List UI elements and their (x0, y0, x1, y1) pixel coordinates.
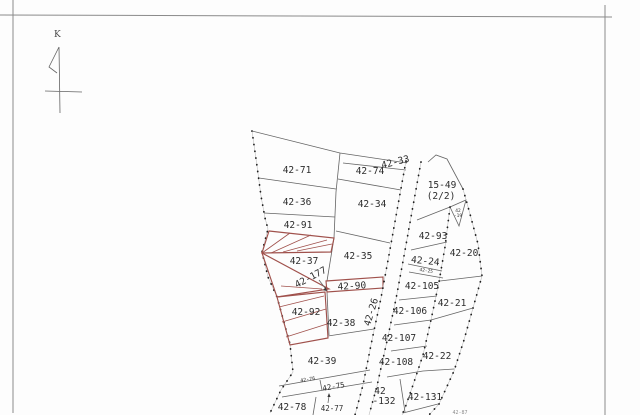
cadastral-map-page: K (0, 0, 640, 415)
divider-74-34 (338, 179, 401, 190)
divider-78-77 (313, 397, 316, 415)
parcel-label-42-37: 42-37 (290, 256, 319, 267)
parcel-label-42-22: 42-22 (423, 351, 452, 362)
parcel-label-42-76: 42-76 (300, 376, 316, 385)
north-arrow-shaft (45, 47, 82, 113)
arrow-42-77-head (327, 393, 330, 397)
divider-107-108 (391, 346, 427, 351)
divider-93-24 (411, 242, 447, 250)
parcel-label-42-177: 42-177 (293, 265, 328, 291)
parcel-label-42-19-line2: -19 (454, 213, 462, 219)
column-divider (334, 153, 340, 238)
page-border-top (0, 15, 612, 17)
parcel-label-42-21: 42-21 (438, 298, 467, 309)
parcel-label-42-107: 42-107 (382, 333, 416, 344)
parcel-label-42-91: 42-91 (284, 220, 313, 231)
parcel-label-42-78: 42-78 (278, 402, 307, 413)
divider-71-36 (259, 178, 336, 189)
divider-22-131 (423, 369, 454, 371)
divider-20-21 (440, 276, 482, 281)
parcel-label-42-24: 42-24 (410, 255, 440, 269)
parcel-15-49-bottom-edge (417, 207, 450, 220)
road-label-42-26: 42-26 (362, 297, 381, 328)
divider-132-131 (400, 379, 405, 412)
parcel-label-42-106: 42-106 (393, 306, 428, 317)
parcel-label-15-49-line1: 15-49 (428, 180, 457, 191)
parcel-label-42-131: 42-131 (408, 392, 443, 403)
divider-105-106 (399, 296, 437, 300)
parcel-label-42-74: 42-74 (356, 166, 385, 177)
parcel-131-bottom-edge (403, 404, 438, 413)
parcel-42-37-hatch (262, 233, 332, 253)
parcel-label-42-36: 42-36 (283, 197, 312, 208)
divider-34-35 (336, 231, 390, 243)
parcel-label-42-105: 42-105 (405, 281, 439, 292)
parcel-label-42-71: 42-71 (283, 165, 312, 176)
parcel-label-42-92: 42-92 (292, 307, 321, 318)
parcel-label-42-132-line2: -132 (373, 396, 396, 407)
parcel-label-15-49-line2: (2/2) (427, 191, 456, 202)
parcel-label-42-87: 42-87 (452, 410, 467, 415)
arrow-42-77-line (328, 396, 329, 403)
block-top-edge (252, 131, 407, 163)
parcel-label-42-20: 42-20 (450, 248, 479, 259)
parcel-label-42-108: 42-108 (379, 357, 414, 368)
cadastral-map-drawing: K (0, 0, 640, 415)
parcel-label-42-93: 42-93 (419, 231, 448, 242)
parcel-42-37-outline (262, 231, 334, 253)
parcel-42-92-outline (277, 292, 328, 345)
parcel-label-42-34: 42-34 (358, 199, 387, 210)
divider-36-91 (264, 213, 335, 217)
north-label: K (54, 30, 61, 40)
divider-38-39 (328, 329, 374, 336)
north-arrow: K (45, 30, 82, 113)
divider-108-132 (387, 371, 423, 377)
parcel-label-42-38: 42-38 (327, 318, 356, 329)
parcel-label-42-90: 42-90 (337, 280, 366, 292)
parcel-label-42-39: 42-39 (308, 356, 337, 367)
parcel-label-42-75: 42-75 (322, 380, 346, 393)
parcel-label-42-77: 42-77 (321, 404, 344, 413)
parcel-label-42-35: 42-35 (344, 251, 373, 262)
parcel-labels: 42-71 42-36 42-91 42-37 42-177 42-92 42-… (278, 154, 479, 415)
